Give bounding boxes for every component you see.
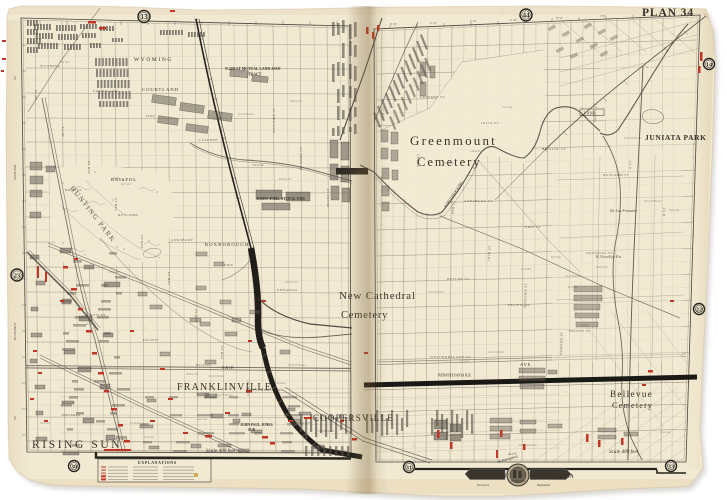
svg-text:M.Fisher: M.Fisher xyxy=(120,183,132,186)
svg-text:Geo.W.Plumer: Geo.W.Plumer xyxy=(318,430,335,433)
svg-text:BUTLER: BUTLER xyxy=(90,313,106,317)
svg-text:P.Kelly Est: P.Kelly Est xyxy=(561,377,574,380)
svg-text:Est.of W.Hunter: Est.of W.Hunter xyxy=(287,364,307,367)
svg-text:LANE: LANE xyxy=(584,110,596,115)
svg-text:P.Kelly Est: P.Kelly Est xyxy=(278,178,291,181)
svg-text:JULIA ST: JULIA ST xyxy=(481,121,499,125)
svg-text:14: 14 xyxy=(706,61,713,68)
svg-text:13: 13 xyxy=(141,14,148,21)
svg-text:WYOMING: WYOMING xyxy=(40,64,61,68)
svg-text:ALLIS: ALLIS xyxy=(508,451,517,456)
svg-text:ROXBOROUGH: ROXBOROUGH xyxy=(205,242,249,247)
svg-text:A ST: A ST xyxy=(628,160,632,169)
svg-text:P.Kelly Est: P.Kelly Est xyxy=(185,373,198,376)
svg-text:Surveyors: Surveyors xyxy=(477,483,490,487)
svg-text:3D ST: 3D ST xyxy=(61,126,65,137)
svg-text:I ST: I ST xyxy=(600,14,606,18)
svg-text:EXPLANATIONS: EXPLANATIONS xyxy=(138,460,177,465)
svg-text:31: 31 xyxy=(406,464,413,471)
svg-text:Greenmount: Greenmount xyxy=(410,133,497,148)
svg-text:MARVINE: MARVINE xyxy=(13,164,17,180)
svg-text:PENNSYLVANIA R.R.: PENNSYLVANIA R.R. xyxy=(437,374,472,378)
svg-text:JUNIATA PARK: JUNIATA PARK xyxy=(645,133,707,142)
svg-text:FRANKLINVILLE: FRANKLINVILLE xyxy=(177,382,272,393)
svg-text:ANNSBURY: ANNSBURY xyxy=(171,238,194,242)
svg-text:Th.Potter: Th.Potter xyxy=(109,271,121,274)
svg-text:Est.of W.Hunter: Est.of W.Hunter xyxy=(518,444,538,447)
svg-text:PLAN 34: PLAN 34 xyxy=(642,7,694,19)
svg-text:M.Fisher: M.Fisher xyxy=(59,61,71,64)
svg-text:MASCHER ST: MASCHER ST xyxy=(272,107,276,133)
svg-text:RUSCOMB ST: RUSCOMB ST xyxy=(603,173,630,177)
svg-text:ERIE ST: ERIE ST xyxy=(525,225,541,229)
svg-text:P.Kelly Est: P.Kelly Est xyxy=(284,281,297,284)
svg-text:JOHN PAUL JONES: JOHN PAUL JONES xyxy=(240,423,273,427)
svg-text:30: 30 xyxy=(71,463,78,470)
svg-text:WESTMORELAND ST: WESTMORELAND ST xyxy=(430,355,471,359)
svg-text:RISING SUN: RISING SUN xyxy=(32,439,122,451)
svg-text:JOHN~PHIL STOCK YDS: JOHN~PHIL STOCK YDS xyxy=(256,196,305,201)
svg-text:ERIE: ERIE xyxy=(222,365,235,370)
svg-text:10TH ST: 10TH ST xyxy=(487,245,492,261)
svg-text:Regulators: Regulators xyxy=(536,483,551,487)
svg-text:6TH ST: 6TH ST xyxy=(140,234,144,248)
svg-text:J.B.Smith: J.B.Smith xyxy=(253,299,264,302)
svg-text:7TH ST: 7TH ST xyxy=(167,271,171,285)
svg-text:ANNSBURY ST: ANNSBURY ST xyxy=(464,199,493,203)
svg-text:HILTON ST: HILTON ST xyxy=(569,329,591,333)
svg-text:Jas.Long: Jas.Long xyxy=(660,431,671,434)
svg-text:9TH ST: 9TH ST xyxy=(220,345,224,359)
svg-text:COURTLAND: COURTLAND xyxy=(142,87,179,92)
svg-text:Jas.Long: Jas.Long xyxy=(669,209,680,212)
svg-text:Cemetery: Cemetery xyxy=(612,400,653,410)
svg-text:H ST: H ST xyxy=(556,16,563,20)
svg-text:Geo.W.Plumer: Geo.W.Plumer xyxy=(238,113,255,116)
svg-text:ERIE: ERIE xyxy=(224,263,234,267)
svg-text:P.Kelly Est: P.Kelly Est xyxy=(289,100,302,103)
svg-text:Cemetery: Cemetery xyxy=(417,155,482,169)
svg-text:AVE.: AVE. xyxy=(520,362,533,367)
svg-text:Jas.Long: Jas.Long xyxy=(40,422,51,425)
svg-text:RUSCOMB: RUSCOMB xyxy=(118,213,138,217)
svg-text:Geo.W.Plumer: Geo.W.Plumer xyxy=(428,291,445,294)
svg-text:BRISTOL: BRISTOL xyxy=(111,177,137,182)
svg-text:22: 22 xyxy=(696,306,703,313)
svg-text:BOUDINOT: BOUDINOT xyxy=(13,321,17,340)
svg-text:G ST: G ST xyxy=(510,18,517,22)
svg-text:44: 44 xyxy=(523,12,531,20)
svg-text:WYOMING: WYOMING xyxy=(134,57,173,63)
svg-text:M.Fisher: M.Fisher xyxy=(85,323,97,326)
svg-text:Est.of W.Hunter: Est.of W.Hunter xyxy=(623,137,643,140)
svg-text:Scale 400 feet: Scale 400 feet xyxy=(206,447,236,454)
svg-text:Th.Potter: Th.Potter xyxy=(510,379,522,382)
svg-text:B ST: B ST xyxy=(662,207,666,216)
svg-text:M.Fisher: M.Fisher xyxy=(550,256,562,259)
svg-text:JULIA: JULIA xyxy=(252,163,264,167)
svg-text:LUZERNE: LUZERNE xyxy=(199,138,218,142)
svg-text:Geo.W.Plumer: Geo.W.Plumer xyxy=(488,351,505,354)
svg-text:PACIFIC ST: PACIFIC ST xyxy=(508,303,531,307)
svg-text:COURTLAND: COURTLAND xyxy=(93,89,118,93)
svg-text:J.B.Smith: J.B.Smith xyxy=(470,150,481,153)
svg-text:Est.of W.Hunter: Est.of W.Hunter xyxy=(643,200,663,203)
svg-text:J.B.Smith: J.B.Smith xyxy=(275,382,286,385)
svg-text:Geo.W.Plumer: Geo.W.Plumer xyxy=(208,375,225,378)
svg-text:Jas.Long: Jas.Long xyxy=(197,418,208,421)
svg-text:ONTARIO: ONTARIO xyxy=(62,413,81,417)
svg-text:N.22D ST MUTUAL LAND ASSN: N.22D ST MUTUAL LAND ASSN xyxy=(225,67,281,71)
svg-text:Th.Potter: Th.Potter xyxy=(521,268,533,271)
svg-text:F ST: F ST xyxy=(470,19,476,23)
svg-text:De Las Fontaine: De Las Fontaine xyxy=(609,208,637,213)
svg-text:Scale 400 feet: Scale 400 feet xyxy=(609,448,639,455)
svg-text:LUZERNE ST: LUZERNE ST xyxy=(420,95,446,99)
svg-text:VENANGO ST: VENANGO ST xyxy=(586,251,613,255)
svg-text:Est.of W.Hunter: Est.of W.Hunter xyxy=(214,394,234,397)
svg-text:Geo.W.Plumer: Geo.W.Plumer xyxy=(565,275,582,278)
svg-text:23: 23 xyxy=(14,272,21,279)
svg-text:E ST: E ST xyxy=(430,21,437,25)
svg-text:P.Kelly Est: P.Kelly Est xyxy=(595,266,608,269)
svg-text:Jas.Long: Jas.Long xyxy=(502,106,513,109)
svg-text:BRISTOL ST: BRISTOL ST xyxy=(542,147,566,151)
svg-text:BUTLER ST: BUTLER ST xyxy=(447,277,470,281)
svg-text:SUB: SUB xyxy=(248,428,256,432)
svg-text:4TH ST: 4TH ST xyxy=(87,160,91,174)
svg-text:PACIFIC: PACIFIC xyxy=(143,338,159,342)
svg-text:HOWARD ST: HOWARD ST xyxy=(559,331,564,355)
svg-text:PIKE: PIKE xyxy=(146,114,156,118)
svg-text:FRONT ST: FRONT ST xyxy=(326,187,330,207)
svg-text:HILTON: HILTON xyxy=(196,363,211,367)
svg-text:Bellevue: Bellevue xyxy=(610,389,653,399)
svg-text:Th.Potter: Th.Potter xyxy=(144,436,156,439)
svg-text:9TH ST: 9TH ST xyxy=(451,200,455,214)
svg-text:5TH ST: 5TH ST xyxy=(114,197,118,211)
svg-text:J.B.Smith: J.B.Smith xyxy=(459,360,470,363)
svg-text:33: 33 xyxy=(668,463,675,470)
svg-text:J.B.Smith: J.B.Smith xyxy=(300,422,311,425)
svg-text:HOWARD ST: HOWARD ST xyxy=(299,146,303,170)
svg-text:2D ST: 2D ST xyxy=(34,89,38,100)
svg-text:TRACT: TRACT xyxy=(248,73,262,77)
svg-text:Th.Potter: Th.Potter xyxy=(130,422,142,425)
svg-text:D ST: D ST xyxy=(390,22,397,26)
svg-text:M.Fisher: M.Fisher xyxy=(567,286,579,289)
svg-text:VENANGO: VENANGO xyxy=(277,288,297,292)
svg-text:8TH ST: 8TH ST xyxy=(194,308,198,322)
svg-text:J.B.Smith: J.B.Smith xyxy=(578,324,589,327)
svg-text:PHILADELPHIA: PHILADELPHIA xyxy=(531,474,574,480)
